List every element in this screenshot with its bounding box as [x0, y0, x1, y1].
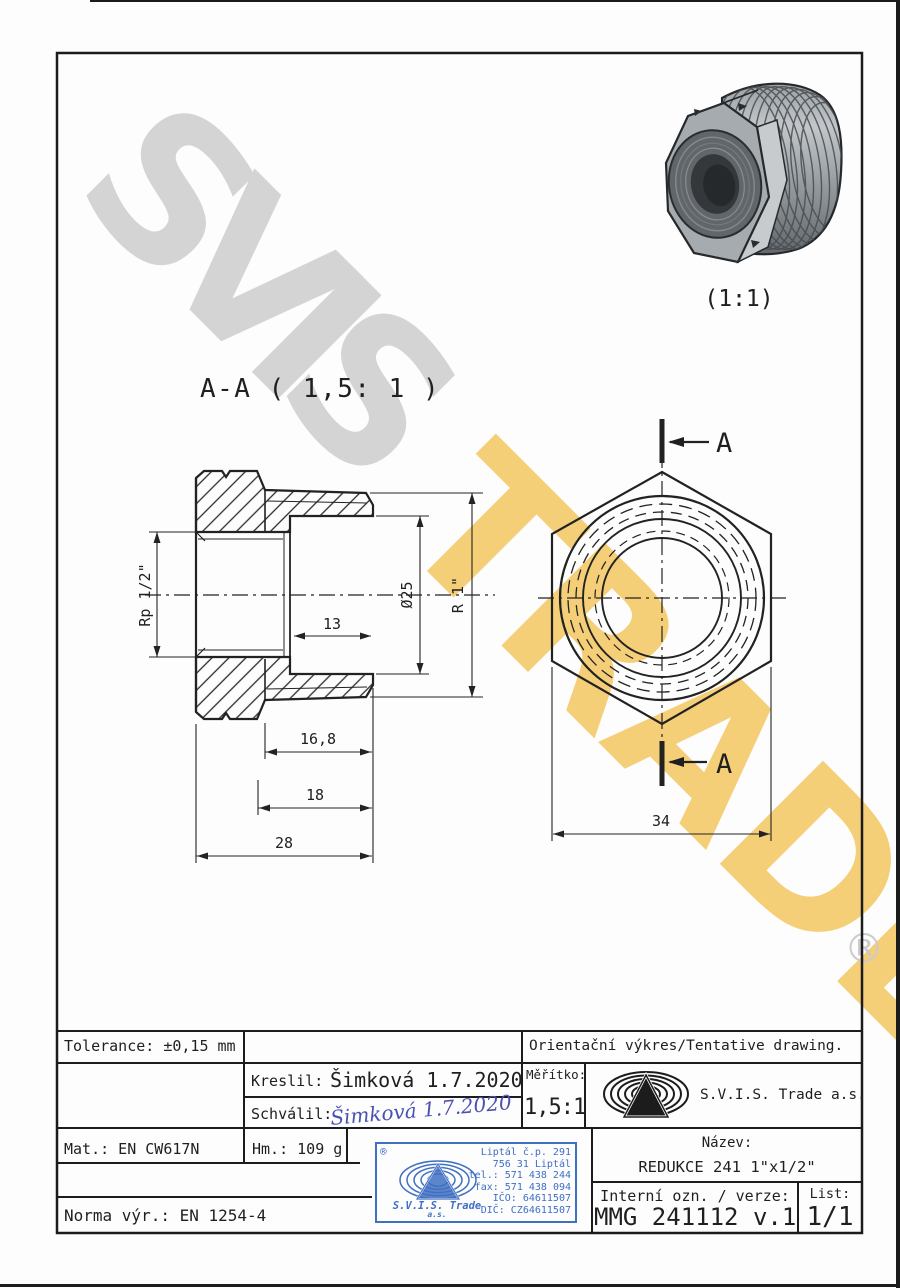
part-name: REDUKCE 241 1"x1/2"	[592, 1158, 862, 1176]
tentative-note: Orientační výkres/Tentative drawing.	[529, 1038, 843, 1054]
standard-field: Norma výr.: EN 1254-4	[64, 1206, 266, 1225]
stamp-line: 756 31 Liptál	[469, 1159, 571, 1171]
stamp-company-suffix: a.s.	[427, 1210, 446, 1219]
dim-rp-half: Rp 1/2"	[136, 563, 154, 626]
dim-18: 18	[306, 786, 324, 804]
hex-view	[538, 419, 788, 786]
scan-edge-right	[896, 0, 900, 1288]
section-arrow-icon	[668, 757, 684, 767]
tolerance-note: Tolerance: ±0,15 mm	[64, 1037, 236, 1055]
approved-by-label: Schválil:	[251, 1105, 332, 1123]
company-stamp: ® S.V.I.S. Trade a.s. Liptál č.p. 291 75…	[375, 1142, 577, 1223]
sheet-label: List:	[798, 1186, 862, 1202]
sheet-value: 1/1	[798, 1202, 862, 1232]
section-arrow-icon	[668, 437, 684, 447]
scale-label: Měřítko:	[526, 1067, 586, 1082]
iso-scale-label: (1:1)	[704, 286, 773, 312]
dim-168: 16,8	[300, 730, 336, 748]
dim-r1: R 1"	[449, 577, 467, 613]
dim-13: 13	[323, 615, 341, 633]
material-field: Mat.: EN CW617N	[64, 1140, 199, 1158]
stamp-line: fax: 571 438 094	[469, 1182, 571, 1194]
stamp-line: Liptál č.p. 291	[469, 1147, 571, 1159]
mass-field: Hm.: 109 g	[252, 1140, 342, 1158]
drawing-sheet: SVIS TRADE ®	[0, 0, 900, 1288]
section-view	[145, 471, 495, 719]
iso-3d-view	[660, 82, 869, 262]
dim-34: 34	[652, 812, 670, 830]
stamp-line: tel.: 571 438 244	[469, 1170, 571, 1182]
scan-edge-bottom	[0, 1284, 900, 1287]
svis-logo	[604, 1072, 688, 1117]
stamp-line: DIČ: CZ64611507	[469, 1205, 571, 1217]
dim-d25: Ø25	[398, 581, 416, 608]
internal-id-value: MMG 241112 v.1	[594, 1203, 796, 1231]
section-arrow-letter-top: A	[716, 428, 732, 459]
name-label: Název:	[592, 1135, 862, 1151]
stamp-address: Liptál č.p. 291 756 31 Liptál tel.: 571 …	[469, 1147, 571, 1217]
section-view-label: A-A ( 1,5: 1 )	[200, 374, 440, 404]
scan-edge-top	[90, 0, 900, 2]
stamp-line: IČO: 64611507	[469, 1193, 571, 1205]
drawn-by-label: Kreslil:	[251, 1072, 323, 1090]
company-name: S.V.I.S. Trade a.s.	[700, 1087, 866, 1103]
section-arrow-letter-bottom: A	[716, 749, 732, 780]
scale-value: 1,5:1	[524, 1095, 585, 1120]
drawn-by-value: Šimková 1.7.2020	[330, 1068, 523, 1092]
lower-section-cut	[196, 657, 373, 719]
dim-28: 28	[275, 834, 293, 852]
